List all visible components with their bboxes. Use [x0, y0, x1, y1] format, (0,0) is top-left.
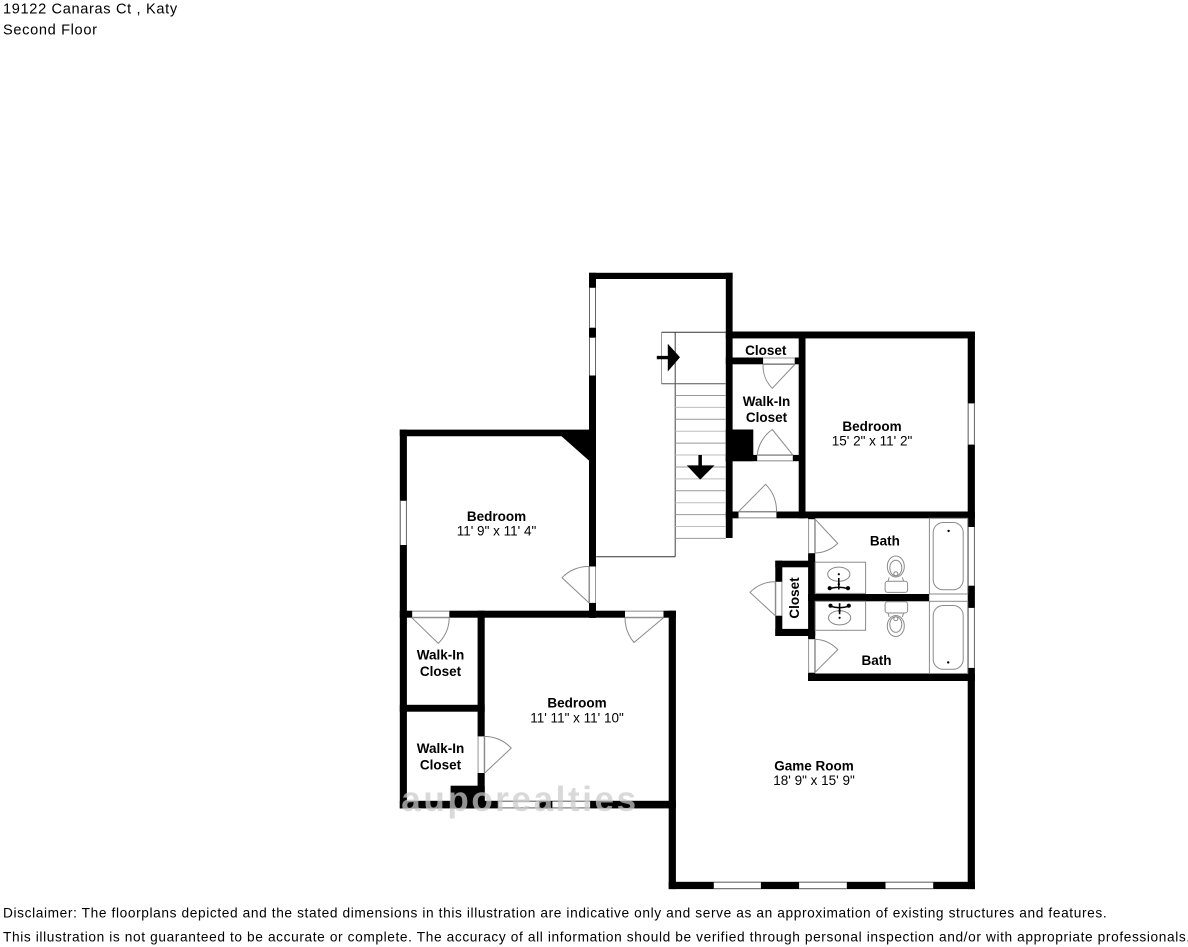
svg-text:Disclaimer: The floorplans dep: Disclaimer: The floorplans depicted and … — [3, 906, 1107, 921]
svg-text:This illustration is not guara: This illustration is not guaranteed to b… — [3, 930, 1188, 945]
svg-text:Game Room: Game Room — [774, 758, 854, 773]
svg-text:Bedroom: Bedroom — [467, 509, 526, 524]
svg-text:19122 Canaras Ct , Katy: 19122 Canaras Ct , Katy — [3, 2, 178, 18]
svg-text:Closet: Closet — [787, 577, 802, 619]
svg-text:Closet: Closet — [746, 410, 788, 425]
svg-text:18' 9" x 15' 9": 18' 9" x 15' 9" — [773, 773, 855, 788]
svg-text:auporealties: auporealties — [401, 780, 638, 819]
svg-text:Bedroom: Bedroom — [547, 696, 606, 711]
svg-text:Closet: Closet — [745, 343, 787, 358]
svg-text:15' 2" x 11' 2": 15' 2" x 11' 2" — [832, 434, 913, 449]
svg-text:Bath: Bath — [862, 653, 892, 668]
svg-text:Closet: Closet — [420, 757, 462, 772]
svg-text:Bath: Bath — [870, 533, 900, 548]
svg-text:Walk-In: Walk-In — [417, 648, 465, 663]
svg-text:11' 9" x 11' 4": 11' 9" x 11' 4" — [457, 524, 537, 539]
svg-text:Closet: Closet — [420, 664, 462, 679]
svg-text:11' 11" x 11' 10": 11' 11" x 11' 10" — [530, 710, 624, 725]
svg-text:Second Floor: Second Floor — [3, 23, 98, 39]
svg-text:Walk-In: Walk-In — [417, 741, 465, 756]
svg-text:Bedroom: Bedroom — [842, 419, 901, 434]
svg-text:Walk-In: Walk-In — [743, 394, 791, 409]
